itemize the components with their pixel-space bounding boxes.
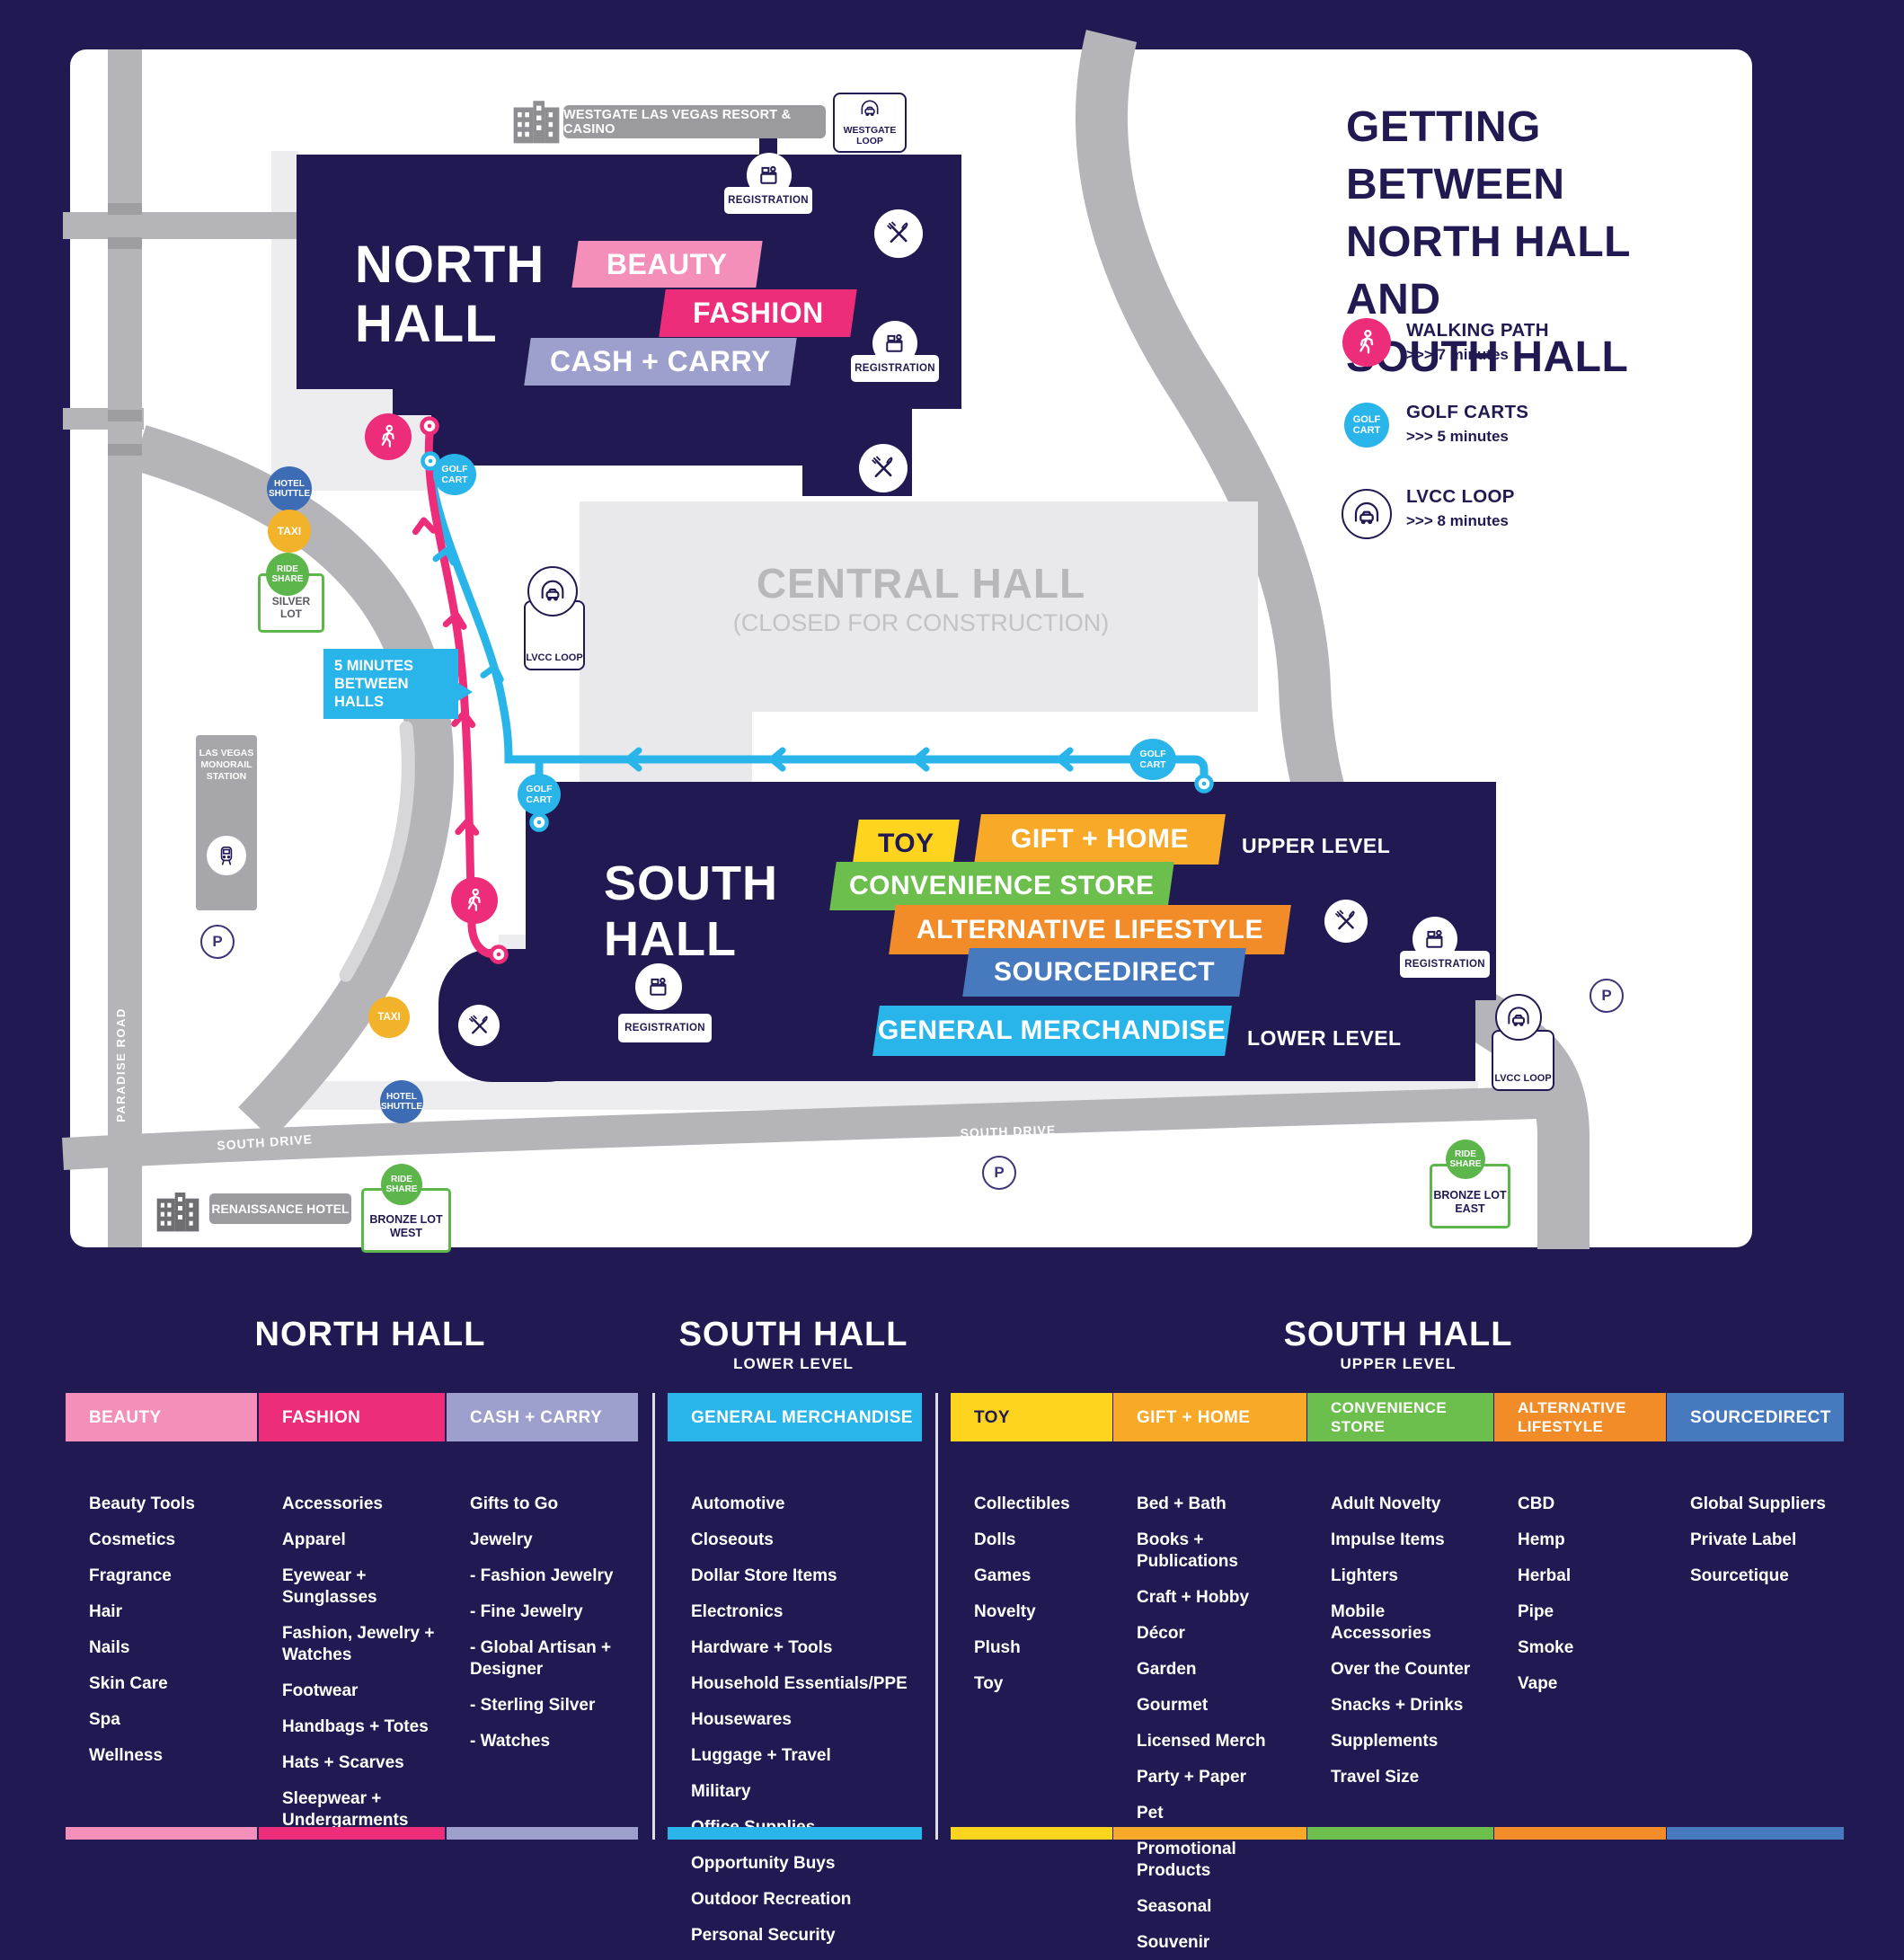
south-hall-category-toy: TOY <box>852 820 960 868</box>
legend-item: Eyewear + Sunglasses <box>282 1565 437 1609</box>
registration-icon <box>635 963 682 1010</box>
legend-item: Automotive <box>691 1494 908 1515</box>
road-labels: PARADISE ROAD SOUTH DRIVE SOUTH DRIVE SI… <box>114 579 1471 1152</box>
road-label-joe-w-brown: JOE W BROWN DRIVE <box>1352 579 1471 676</box>
legend-item: Handbags + Totes <box>282 1716 437 1738</box>
registration-label: REGISTRATION <box>618 1014 712 1042</box>
monorail-station-label: LAS VEGAS MONORAIL STATION <box>196 748 257 783</box>
legend-item: Impulse Items <box>1331 1530 1476 1551</box>
legend-item: Household Essentials/PPE <box>691 1673 908 1695</box>
lvcc-show-map: PARADISE ROAD SOUTH DRIVE SOUTH DRIVE SI… <box>0 0 1904 1960</box>
taxi-badge: TAXI <box>268 510 311 553</box>
legend-item: Novelty <box>974 1601 1107 1623</box>
legend-bar-beauty <box>66 1827 257 1840</box>
legend-header-gift-home: GIFT + HOME <box>1113 1393 1306 1441</box>
lower-level-label: LOWER LEVEL <box>1247 1026 1402 1051</box>
food-icon <box>874 209 923 258</box>
legend-list-fashion: AccessoriesApparelEyewear + SunglassesFa… <box>282 1494 437 1846</box>
legend-item: Private Label <box>1690 1530 1834 1551</box>
road-label-south-drive-west: SOUTH DRIVE <box>217 1131 314 1152</box>
ride-share-badge: RIDE SHARE <box>1446 1140 1485 1179</box>
north-hall-title: NORTH HALL <box>355 235 545 354</box>
legend-item: CBD <box>1518 1494 1652 1515</box>
legend-item: - Global Artisan + Designer <box>470 1637 630 1681</box>
legend-list-alt-lifestyle: CBDHempHerbalPipeSmokeVape <box>1518 1494 1652 1709</box>
legend-item: Military <box>691 1781 908 1803</box>
legend-item: Hats + Scarves <box>282 1752 437 1774</box>
legend-item: Fashion, Jewelry + Watches <box>282 1623 437 1666</box>
south-hall-category-gift-home: GIFT + HOME <box>974 814 1226 865</box>
legend-item: Fragrance <box>89 1565 244 1587</box>
westgate-resort-label: WESTGATE LAS VEGAS RESORT & CASINO <box>563 105 826 138</box>
legend-item: - Fashion Jewelry <box>470 1565 630 1587</box>
legend-item: Games <box>974 1565 1107 1587</box>
road-label-south-drive-east: SOUTH DRIVE <box>960 1122 1056 1140</box>
legend-bar-convenience <box>1307 1827 1493 1840</box>
legend-item: Books + Publications <box>1137 1530 1297 1573</box>
loop-car-icon <box>1342 489 1392 539</box>
walking-icon <box>1342 318 1391 367</box>
registration-label: REGISTRATION <box>724 187 812 214</box>
legend-item: Footwear <box>282 1681 437 1702</box>
legend-item: Personal Security <box>691 1925 908 1947</box>
map-title: GETTING BETWEEN NORTH HALL AND SOUTH HAL… <box>1346 99 1732 386</box>
hotel-shuttle-badge: HOTEL SHUTTLE <box>267 466 312 511</box>
registration-label: REGISTRATION <box>1400 951 1490 978</box>
legend-item: Spa <box>89 1709 244 1731</box>
legend-item: Gifts to Go <box>470 1494 630 1515</box>
transit-golf-time: >>> 5 minutes <box>1406 428 1509 446</box>
legend-item: Promotional Products <box>1137 1839 1297 1882</box>
legend-divider <box>652 1393 655 1840</box>
legend-item: Seasonal <box>1137 1896 1297 1918</box>
legend-item: Closeouts <box>691 1530 908 1551</box>
legend-section-title-south-lower: SOUTH HALL <box>659 1316 928 1354</box>
renaissance-hotel-label: RENAISSANCE HOTEL <box>209 1193 351 1224</box>
legend-list-gift-home: Bed + BathBooks + PublicationsCraft + Ho… <box>1137 1494 1297 1960</box>
between-halls-callout: 5 MINUTES BETWEEN HALLS <box>323 649 458 719</box>
legend-list-general-merchandise: AutomotiveCloseoutsDollar Store ItemsEle… <box>691 1494 908 1960</box>
legend-item: Housewares <box>691 1709 908 1731</box>
legend-item: Adult Novelty <box>1331 1494 1476 1515</box>
south-hall-category-alt-lifestyle: ALTERNATIVE LIFESTYLE <box>889 905 1291 954</box>
silver-drive-median <box>346 728 408 975</box>
golf-cart-badge: GOLF CART <box>1344 403 1389 448</box>
ride-share-badge: RIDE SHARE <box>266 553 309 596</box>
legend-list-sourcedirect: Global SuppliersPrivate LabelSourcetique <box>1690 1494 1834 1601</box>
legend-item: Apparel <box>282 1530 437 1551</box>
westgate-loop-label: WESTGATE LOOP <box>835 126 905 146</box>
legend-item: Bed + Bath <box>1137 1494 1297 1515</box>
food-icon <box>859 444 908 492</box>
legend-item: Skin Care <box>89 1673 244 1695</box>
legend-item: Outdoor Recreation <box>691 1889 908 1911</box>
legend-header-sourcedirect: SOURCEDIRECT <box>1667 1393 1844 1441</box>
transit-golf-label: GOLF CARTS <box>1406 402 1528 423</box>
loop-car-icon <box>527 566 578 616</box>
legend-item: Mobile Accessories <box>1331 1601 1476 1645</box>
legend-item: Nails <box>89 1637 244 1659</box>
walking-icon <box>451 877 498 924</box>
monorail-train-icon <box>207 836 246 875</box>
legend-item: Snacks + Drinks <box>1331 1695 1476 1716</box>
road-label-silver-drive: SILVER DRIVE <box>277 931 344 1019</box>
loop-car-icon <box>858 97 881 120</box>
legend-header-convenience: CONVENIENCE STORE <box>1307 1393 1493 1441</box>
legend-item: Smoke <box>1518 1637 1652 1659</box>
legend-header-general-merchandise: GENERAL MERCHANDISE <box>668 1393 922 1441</box>
legend-item: Dollar Store Items <box>691 1565 908 1587</box>
legend-bar-gift-home <box>1113 1827 1306 1840</box>
legend-divider <box>935 1393 938 1840</box>
legend-item: Décor <box>1137 1623 1297 1645</box>
legend-item: Luggage + Travel <box>691 1745 908 1767</box>
north-hall-category-cash-carry: CASH + CARRY <box>524 338 796 386</box>
legend-section-subtitle-lower: LOWER LEVEL <box>659 1355 928 1373</box>
parking-icon: P <box>1590 979 1624 1013</box>
transit-walking-label: WALKING PATH <box>1406 320 1549 341</box>
south-hall-category-sourcedirect: SOURCEDIRECT <box>962 948 1246 997</box>
road-crossings <box>108 203 142 456</box>
legend-item: Hemp <box>1518 1530 1652 1551</box>
legend-item: - Fine Jewelry <box>470 1601 630 1623</box>
transit-walking-time: >>> 7 minutes <box>1406 346 1509 364</box>
legend-item: Opportunity Buys <box>691 1853 908 1875</box>
legend-bar-alt-lifestyle <box>1494 1827 1666 1840</box>
legend-item: Supplements <box>1331 1731 1476 1752</box>
upper-level-label: UPPER LEVEL <box>1242 834 1390 858</box>
legend-item: Global Suppliers <box>1690 1494 1834 1515</box>
ride-share-badge: RIDE SHARE <box>381 1164 422 1205</box>
legend-header-fashion: FASHION <box>259 1393 445 1441</box>
loop-car-icon <box>1495 994 1542 1041</box>
taxi-badge: TAXI <box>368 997 410 1038</box>
central-hall-title: CENTRAL HALL <box>701 559 1141 608</box>
legend-section-title-south-upper: SOUTH HALL <box>1263 1316 1533 1354</box>
legend-section-title-north: NORTH HALL <box>235 1316 505 1354</box>
legend-item: Lighters <box>1331 1565 1476 1587</box>
legend-item: Party + Paper <box>1137 1767 1297 1788</box>
south-hall-title: SOUTH HALL <box>604 856 778 967</box>
legend-item: Beauty Tools <box>89 1494 244 1515</box>
parking-icon: P <box>982 1156 1016 1190</box>
walking-icon <box>365 413 412 460</box>
legend-list-toy: CollectiblesDollsGamesNoveltyPlushToy <box>974 1494 1107 1709</box>
road-south-drive <box>63 1102 1568 1154</box>
legend-item: Dolls <box>974 1530 1107 1551</box>
transit-loop-time: >>> 8 minutes <box>1406 512 1509 530</box>
legend-item: Accessories <box>282 1494 437 1515</box>
legend-header-alt-lifestyle: ALTERNATIVE LIFESTYLE <box>1494 1393 1666 1441</box>
roads <box>63 36 1568 1249</box>
food-icon <box>1324 900 1368 943</box>
legend-item: Hardware + Tools <box>691 1637 908 1659</box>
legend-item: Plush <box>974 1637 1107 1659</box>
legend-list-beauty: Beauty ToolsCosmeticsFragranceHairNailsS… <box>89 1494 244 1781</box>
central-hall-status: (CLOSED FOR CONSTRUCTION) <box>701 609 1141 637</box>
south-hall-category-general-merchandise: GENERAL MERCHANDISE <box>872 1006 1232 1056</box>
westgate-building-icon <box>510 95 562 150</box>
westgate-loop-station: WESTGATE LOOP <box>833 93 907 153</box>
legend-item: Jewelry <box>470 1530 630 1551</box>
golf-cart-badge: GOLF CART <box>1129 739 1176 780</box>
north-hall-category-beauty: BEAUTY <box>571 241 762 288</box>
legend-item: Wellness <box>89 1745 244 1767</box>
legend-item: Garden <box>1137 1659 1297 1681</box>
legend-item: Licensed Merch <box>1137 1731 1297 1752</box>
map-title-line1: GETTING BETWEEN <box>1346 99 1732 214</box>
legend-item: Pet <box>1137 1803 1297 1824</box>
road-label-paradise: PARADISE ROAD <box>114 1007 128 1122</box>
hotel-building-icon <box>153 1188 203 1237</box>
legend-bar-general-merchandise <box>668 1827 922 1840</box>
legend-item: Craft + Hobby <box>1137 1587 1297 1609</box>
legend-header-beauty: BEAUTY <box>66 1393 257 1441</box>
legend-section-subtitle-upper: UPPER LEVEL <box>1263 1355 1533 1373</box>
legend-item: Hair <box>89 1601 244 1623</box>
legend-header-cash-carry: CASH + CARRY <box>447 1393 638 1441</box>
transit-loop-label: LVCC LOOP <box>1406 486 1515 508</box>
legend-bar-toy <box>951 1827 1112 1840</box>
north-hall-category-fashion: FASHION <box>659 289 856 337</box>
callout-pointer <box>458 683 473 701</box>
legend-bar-cash-carry <box>447 1827 638 1840</box>
legend-item: Over the Counter <box>1331 1659 1476 1681</box>
legend-item: Toy <box>974 1673 1107 1695</box>
legend-item: Vape <box>1518 1673 1652 1695</box>
golf-cart-badge: GOLF CART <box>433 454 476 495</box>
legend-item: Electronics <box>691 1601 908 1623</box>
golf-cart-badge: GOLF CART <box>518 774 561 815</box>
map-title-line2: NORTH HALL AND <box>1346 214 1732 329</box>
legend-item: Collectibles <box>974 1494 1107 1515</box>
hotel-shuttle-badge: HOTEL SHUTTLE <box>380 1080 423 1123</box>
legend-item: Pipe <box>1518 1601 1652 1623</box>
legend-item: Herbal <box>1518 1565 1652 1587</box>
south-hall-category-convenience: CONVENIENCE STORE <box>829 862 1174 910</box>
legend-item: Gourmet <box>1137 1695 1297 1716</box>
registration-label: REGISTRATION <box>851 355 939 382</box>
legend-item: Cosmetics <box>89 1530 244 1551</box>
legend-item: Souvenir <box>1137 1932 1297 1954</box>
legend-bar-sourcedirect <box>1667 1827 1844 1840</box>
legend-list-cash-carry: Gifts to GoJewelry- Fashion Jewelry- Fin… <box>470 1494 630 1767</box>
legend-item: Sourcetique <box>1690 1565 1834 1587</box>
parking-icon: P <box>200 925 235 959</box>
legend-bar-fashion <box>259 1827 445 1840</box>
legend-item: Travel Size <box>1331 1767 1476 1788</box>
food-icon <box>458 1005 500 1046</box>
legend-header-toy: TOY <box>951 1393 1112 1441</box>
legend-item: - Watches <box>470 1731 630 1752</box>
legend-list-convenience: Adult NoveltyImpulse ItemsLightersMobile… <box>1331 1494 1476 1803</box>
legend-item: Sleepwear + Undergarments <box>282 1788 437 1831</box>
legend-item: - Sterling Silver <box>470 1695 630 1716</box>
